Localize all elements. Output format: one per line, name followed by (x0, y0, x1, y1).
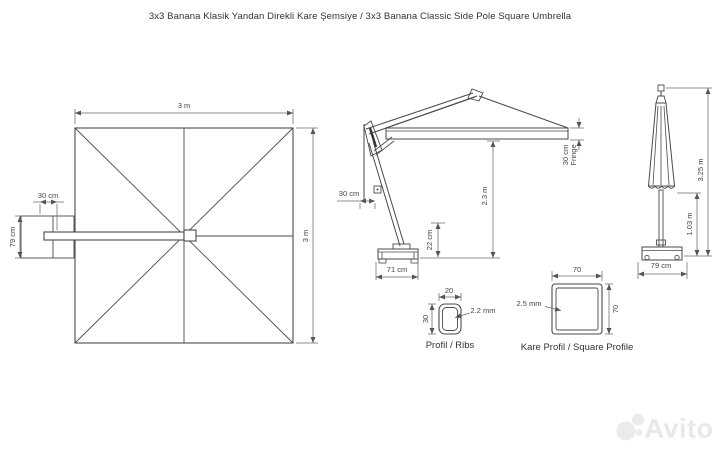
closed-view-total-height-dim: 3.25 m (697, 159, 705, 182)
side-view-base-height-dim: 22 cm (426, 230, 434, 250)
avito-logo-icon (617, 414, 645, 441)
closed-view-pole-height-dim: 1.03 m (686, 213, 694, 236)
top-view-base-depth-dim: 79 cm (9, 227, 17, 247)
closed-view-umbrella (642, 85, 682, 260)
top-view-pole-offset-dim: 30 cm (38, 192, 58, 200)
top-view-width-dim: 3 m (178, 102, 191, 110)
square-profile-wall-dim: 2.5 mm (516, 300, 541, 308)
side-view-pole-offset-dim: 30 cm (339, 190, 359, 198)
square-profile-height-dim: 70 (612, 305, 620, 313)
rib-profile-height-dim: 30 (422, 315, 430, 323)
rib-profile-width-dim: 20 (445, 287, 453, 295)
square-profile-section (552, 284, 602, 334)
side-view-base-width-dim: 71 cm (387, 266, 407, 274)
rib-profile-caption: Profil / Ribs (426, 341, 475, 351)
top-view-height-dim: 3 m (302, 230, 310, 243)
square-profile-caption: Kare Profil / Square Profile (521, 343, 633, 353)
rib-profile-wall-dim: 2.2 mm (470, 307, 495, 315)
closed-view-base-width-dim: 79 cm (651, 262, 671, 270)
umbrella-line-art (0, 0, 720, 454)
rib-profile-section (439, 304, 461, 334)
technical-drawing-page: 3x3 Banana Klasik Yandan Direkli Kare Şe… (0, 0, 720, 454)
square-profile-width-dim: 70 (573, 266, 581, 274)
side-view-fringe-dim: 30 cm Fringe (562, 144, 579, 165)
top-view-canopy (21, 128, 293, 343)
side-view-umbrella (364, 89, 568, 263)
avito-watermark-text: Avito (645, 414, 714, 445)
side-view-clearance-dim: 2.3 m (481, 187, 489, 206)
